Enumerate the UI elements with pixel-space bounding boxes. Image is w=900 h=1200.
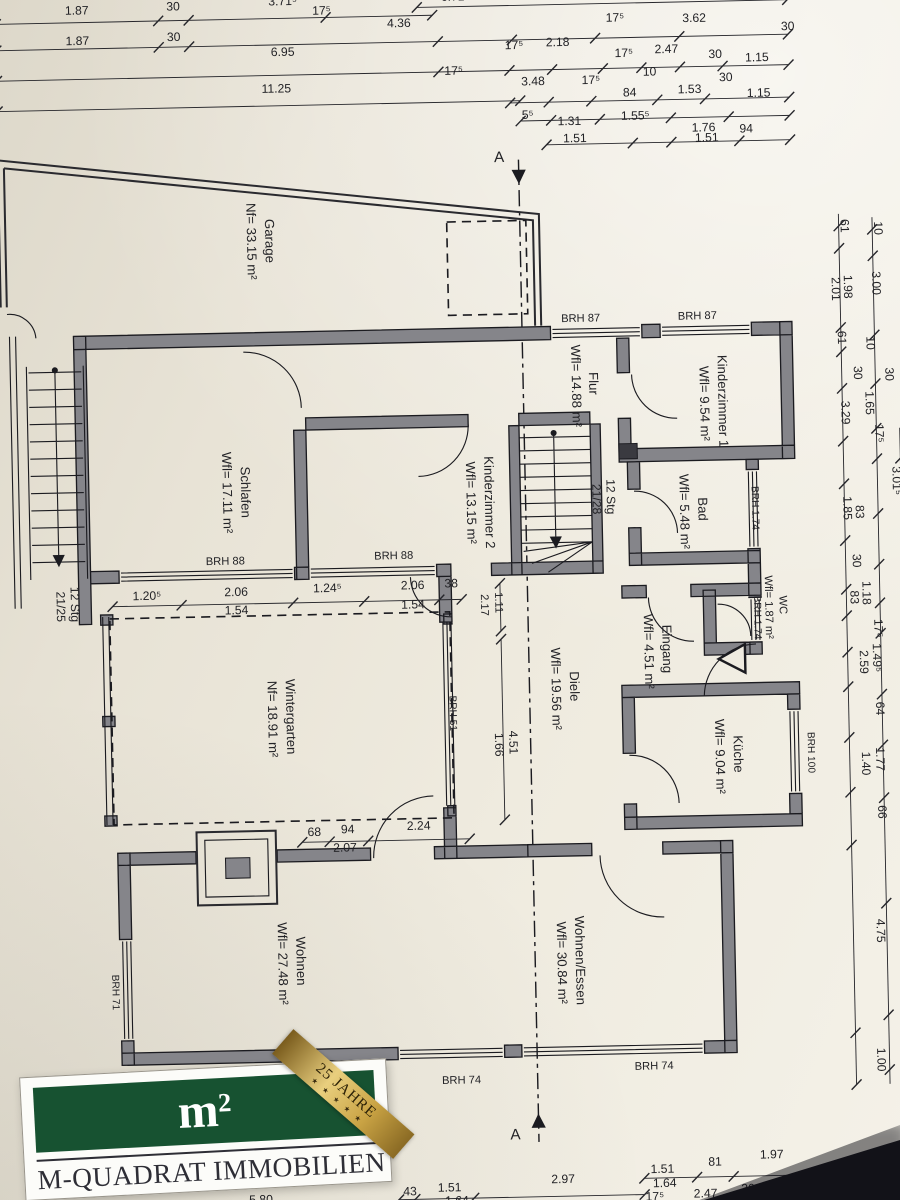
dim-right: 1.85 [840, 496, 854, 520]
dim-inner: 1.66 [492, 733, 506, 757]
window-label: BRH 51 [446, 695, 458, 731]
dim-right: 3.01⁵ [889, 466, 900, 495]
dim-top: 1.87 [65, 3, 89, 17]
logo-m2-mark: m2 [177, 1086, 233, 1137]
logo-mquadrat: m2 M-QUADRAT IMMOBILIEN 25 JAHRE ★ ★ ★ ★… [19, 1058, 392, 1200]
room-label: Wfl= 27.48 m² [275, 922, 292, 1005]
room-label: Wfl= 17.11 m² [219, 452, 236, 534]
dim-right: 66 [875, 805, 889, 819]
room-label: Wohnen/Essen [572, 916, 589, 1005]
dim-right: 4.75 [873, 919, 887, 943]
stair-label: 12 Stg [68, 587, 83, 622]
photographed-floorplan-sheet: 1.87303.71⁵17⁵6.71⁵3.621.87304.3617⁵3.62… [0, 0, 900, 1200]
dim-top: 17⁵ [581, 73, 600, 87]
room-label: Diele [567, 671, 583, 701]
dim-top: 30 [166, 0, 180, 14]
dim-inner: 1.20⁵ [132, 589, 161, 604]
room-label: Schlafen [238, 466, 254, 518]
stair-label: 21/28 [589, 484, 604, 515]
dim-right: 2.59 [857, 650, 871, 674]
room-label: Wfl= 9.54 m² [696, 366, 713, 442]
dim-right: 30 [850, 554, 864, 568]
dim-right: 30 [851, 366, 865, 380]
dim-top: 84 [623, 85, 637, 99]
section-label: A [510, 1126, 521, 1143]
dim-right: 83 [853, 505, 867, 519]
room-label: Wfl= 1.87 m² [762, 575, 775, 639]
room-label: Wfl= 5.48 m² [676, 474, 693, 550]
dim-bottom: 2.97 [551, 1172, 575, 1186]
stair-label: 12 Stg [603, 479, 618, 514]
dim-inner: 2.07 [333, 840, 357, 854]
dim-bottom: 1.51 [650, 1162, 674, 1176]
dim-inner: 1.54 [401, 597, 425, 611]
dim-top: 17⁵ [606, 10, 625, 24]
window-label: BRH 74 [442, 1074, 481, 1087]
floorplan-drawing: 1.87303.71⁵17⁵6.71⁵3.621.87304.3617⁵3.62… [0, 0, 900, 1200]
window-label: BRH 100 [805, 732, 817, 774]
dim-top: 1.51 [563, 131, 587, 145]
room-label: Wfl= 13.15 m² [463, 461, 480, 544]
dim-right: 1.49⁵ [870, 643, 885, 672]
wintergarten-dashed-outline [110, 612, 454, 825]
window-label: BRH 87 [561, 312, 600, 325]
dim-bottom: 43 [403, 1184, 417, 1198]
dim-right: 1.40 [859, 752, 873, 776]
section-label: A [494, 149, 505, 166]
stair-label: 21/25 [53, 591, 68, 622]
dim-right: 1.00 [874, 1048, 888, 1072]
room-label: Kinderzimmer 2 [481, 456, 498, 549]
dim-inner: 1.54 [225, 603, 249, 617]
window-label: BRH 87 [678, 310, 717, 323]
dim-top: 1.15 [747, 85, 771, 99]
dim-top: 5⁵ [522, 108, 534, 122]
dim-top: 1.87 [65, 34, 89, 48]
room-label: Wintergarten [283, 679, 300, 755]
dim-top: 3.48 [521, 74, 545, 88]
room-label: Nf= 18.91 m² [264, 681, 281, 759]
dim-top: 11.25 [261, 81, 291, 96]
dim-top: 94 [739, 121, 753, 135]
walls [73, 321, 807, 1066]
annotations-layer: 1.87303.71⁵17⁵6.71⁵3.621.87304.3617⁵3.62… [41, 0, 900, 1200]
dim-bottom: 1.64 [445, 1193, 469, 1200]
room-label: WC [776, 595, 788, 614]
dim-bottom: 81 [708, 1155, 722, 1169]
dim-right: 30 [882, 367, 896, 381]
dim-top: 1.51 [695, 130, 719, 144]
room-label: Wfl= 14.88 m² [568, 344, 585, 427]
dim-top: 17⁵ [614, 46, 633, 60]
room-label: Küche [731, 735, 747, 773]
dim-inner: 4.51 [506, 730, 520, 754]
dim-inner: 2.06 [401, 578, 425, 592]
room-label: Wfl= 19.56 m² [548, 647, 565, 730]
room-label: Wfl= 9.04 m² [712, 719, 729, 795]
dim-top: 4.36 [387, 16, 411, 30]
dim-inner: 38 [444, 576, 458, 590]
room-label: Nf= 33.15 m² [243, 203, 260, 281]
dim-top: 17⁵ [444, 63, 463, 77]
dim-right: 1.98 [841, 275, 855, 299]
dim-top: 1.31 [557, 114, 581, 128]
dim-inner: 1.11 [492, 592, 504, 613]
dim-right: 64 [873, 701, 887, 715]
dim-bottom: 5.80 [249, 1192, 273, 1200]
dim-top: 6.95 [271, 45, 295, 59]
room-label: Flur [586, 372, 601, 396]
window-label: BRH 1.74 [749, 486, 761, 530]
dim-right: 61 [835, 331, 849, 345]
dim-inner: 1.24⁵ [313, 581, 342, 596]
dim-right: 17⁵ [872, 424, 886, 443]
room-label: Eingang [659, 625, 675, 674]
dim-inner: 94 [341, 822, 355, 836]
dim-right: 1.65 [862, 391, 876, 415]
dim-bottom: 1.97 [760, 1147, 784, 1161]
dim-right: 83 [847, 590, 861, 604]
window-label: BRH 88 [206, 555, 245, 568]
window-label: BRH 1.74 [751, 596, 763, 640]
dim-top: 6.71⁵ [441, 0, 470, 4]
dim-top: 3.62 [682, 11, 706, 25]
dim-top: 2.47 [654, 42, 678, 56]
dim-top: 3.71⁵ [268, 0, 297, 8]
dim-right: 10 [863, 336, 877, 350]
room-label: Wohnen [293, 937, 309, 986]
dim-right: 61 [838, 219, 852, 233]
dim-inner: 2.24 [407, 818, 431, 832]
plumbing-shaft [619, 443, 638, 459]
room-label: Bad [695, 497, 710, 521]
stairs-interior [519, 429, 593, 573]
dim-top: 30 [781, 19, 795, 33]
dim-top: 17⁵ [312, 3, 331, 17]
window-label: BRH 74 [635, 1060, 674, 1073]
dim-right: 10 [871, 221, 885, 235]
room-label: Wfl= 4.51 m² [641, 614, 658, 690]
dim-top: 30 [167, 30, 181, 44]
dim-right: 17⁵ [871, 619, 885, 638]
room-label: Wfl= 30.84 m² [554, 921, 571, 1004]
dim-inner: 2.06 [224, 585, 248, 599]
dim-right: 3.29 [838, 401, 852, 425]
dim-top: 2.18 [546, 35, 570, 49]
dim-right: 1.77 [873, 747, 887, 771]
dim-top: 10 [643, 65, 657, 79]
dim-top: 1.53 [678, 82, 702, 96]
dim-right: 3.00 [869, 271, 883, 295]
dim-inner: 68 [307, 825, 321, 839]
dim-top: 30 [708, 47, 722, 61]
dim-top: 1.15 [745, 50, 769, 64]
room-label: Kinderzimmer 1 [714, 355, 731, 448]
dim-bottom: 17⁵ [645, 1189, 664, 1200]
room-label: Garage [262, 219, 278, 263]
chimney [196, 831, 277, 906]
window-label: BRH 71 [109, 975, 121, 1011]
dim-inner: 2.17 [478, 594, 490, 616]
window-label: BRH 88 [374, 550, 413, 563]
dim-bottom: 1.64 [653, 1176, 677, 1190]
paper-rotation-wrapper: 1.87303.71⁵17⁵6.71⁵3.621.87304.3617⁵3.62… [0, 0, 900, 1200]
dim-top: 1.55⁵ [621, 108, 650, 123]
dim-top: 17⁵ [505, 38, 524, 52]
dim-top: 30 [719, 70, 733, 84]
